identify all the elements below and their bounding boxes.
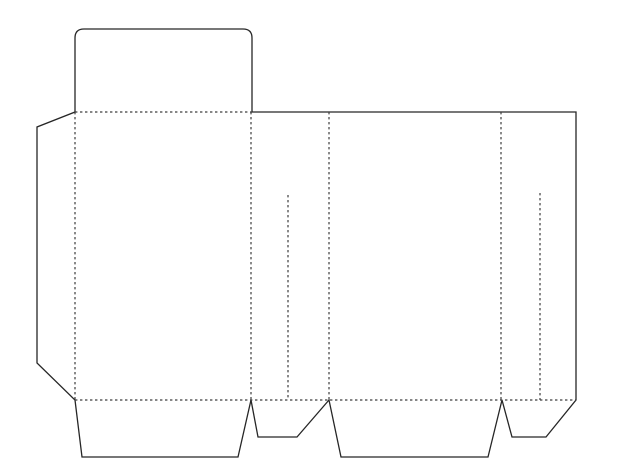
cut-outline bbox=[37, 29, 576, 457]
cut-lines-layer bbox=[37, 29, 576, 457]
fold-lines-layer bbox=[75, 112, 576, 400]
dieline-canvas bbox=[0, 0, 620, 474]
box-dieline-diagram bbox=[0, 0, 620, 474]
